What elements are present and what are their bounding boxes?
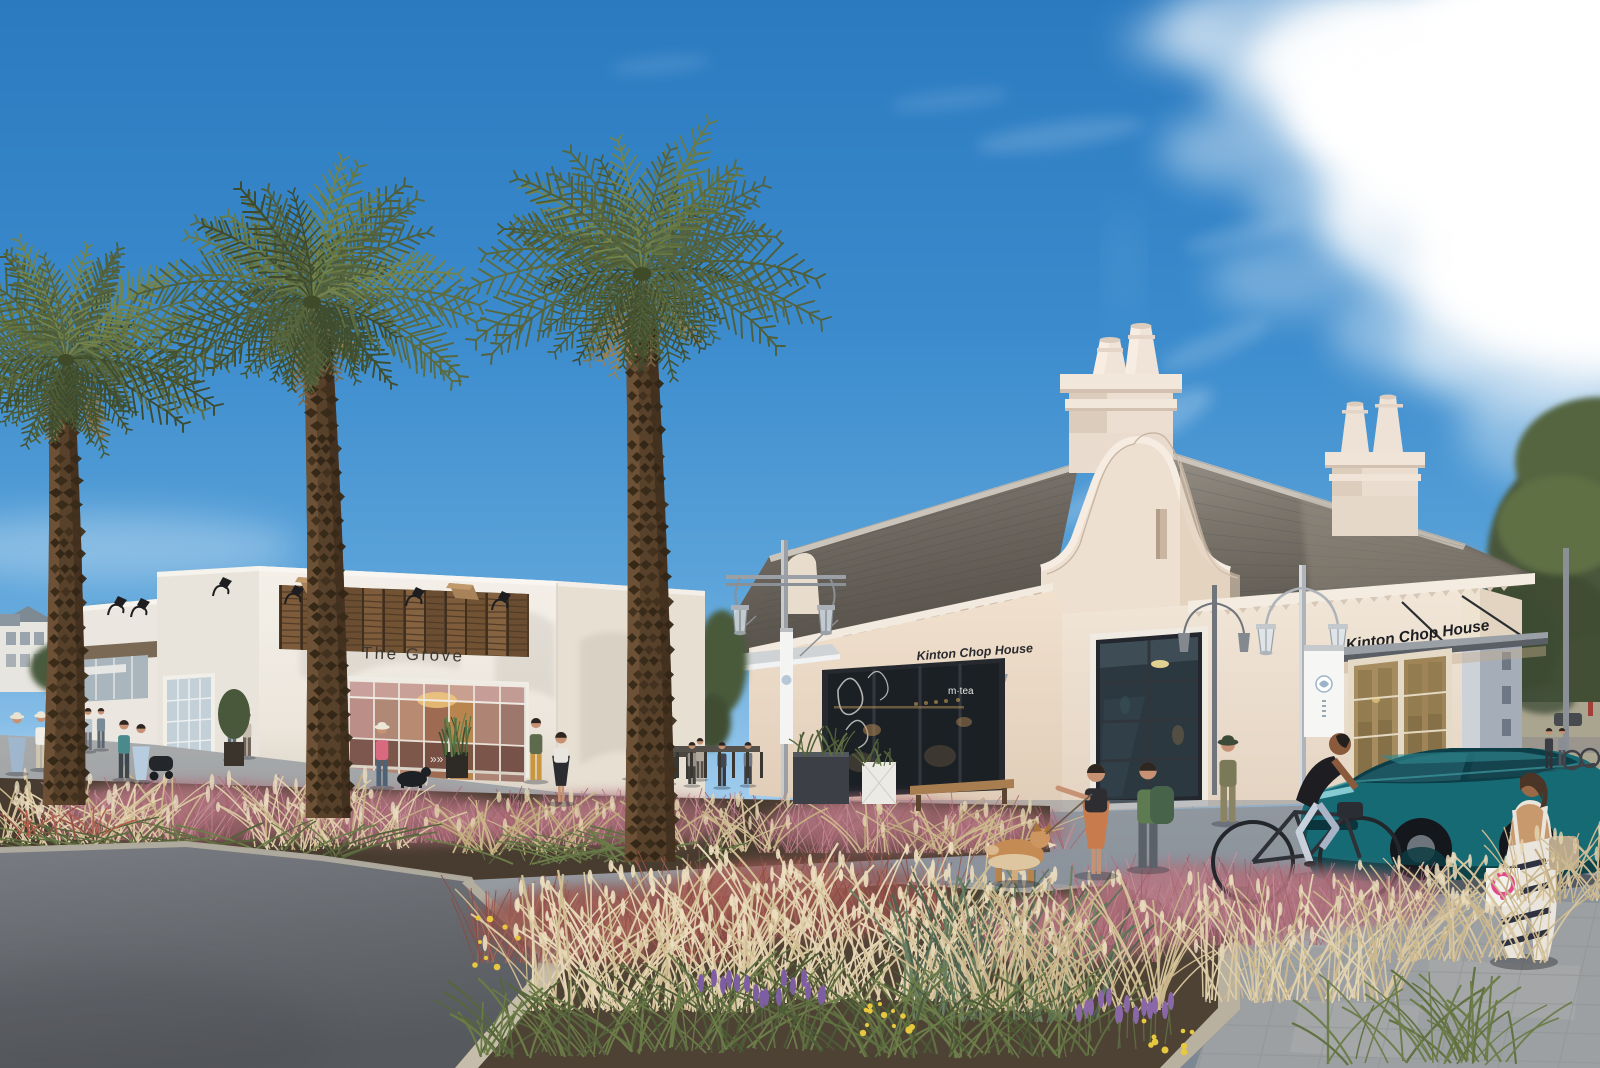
svg-text:m·tea: m·tea [948,686,974,697]
svg-text:The Grove: The Grove [361,643,464,665]
svg-text:»»: »» [430,752,444,766]
